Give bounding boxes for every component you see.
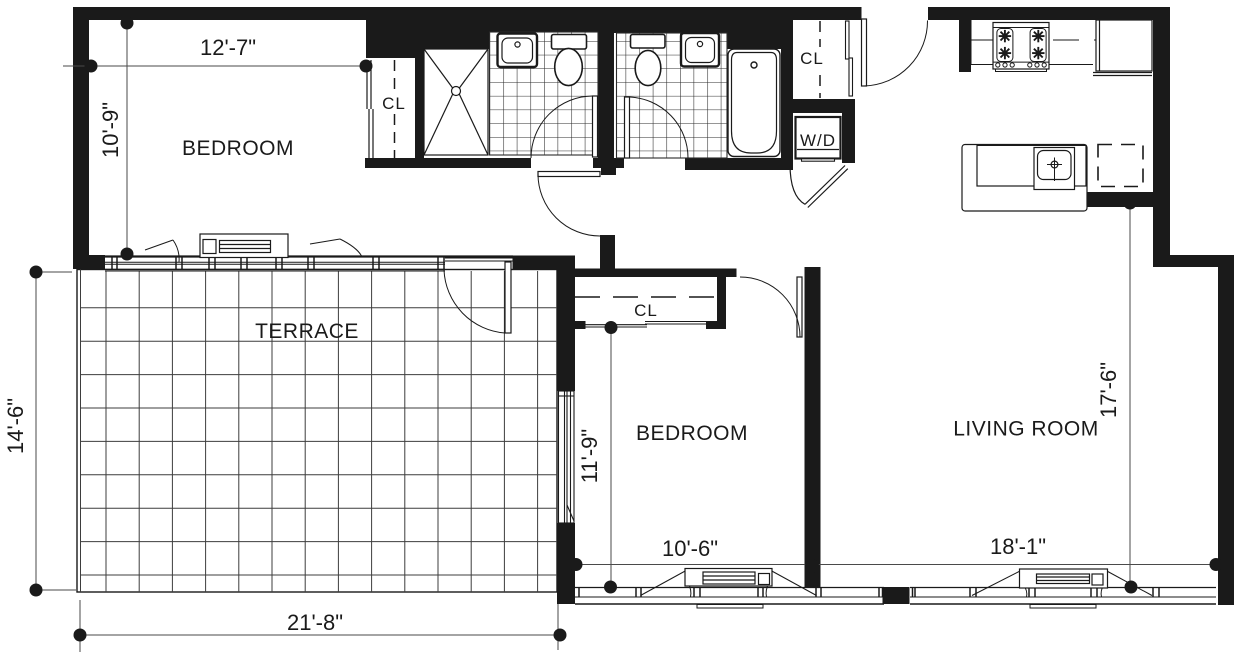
svg-text:18'-1": 18'-1" <box>990 534 1046 559</box>
svg-text:CL: CL <box>800 49 824 68</box>
svg-text:14'-6": 14'-6" <box>3 398 28 454</box>
svg-text:10'-9": 10'-9" <box>98 102 123 158</box>
svg-text:21'-8": 21'-8" <box>287 610 343 635</box>
svg-text:TERRACE: TERRACE <box>255 320 359 343</box>
svg-text:17'-6": 17'-6" <box>1096 362 1121 418</box>
svg-text:BEDROOM: BEDROOM <box>636 422 748 445</box>
svg-text:CL: CL <box>634 301 658 320</box>
svg-text:12'-7": 12'-7" <box>200 35 256 60</box>
svg-text:W/D: W/D <box>800 131 836 150</box>
svg-text:BEDROOM: BEDROOM <box>182 137 294 160</box>
svg-text:LIVING ROOM: LIVING ROOM <box>953 418 1099 441</box>
svg-text:11'-9": 11'-9" <box>577 429 602 483</box>
svg-text:CL: CL <box>382 94 406 113</box>
svg-text:10'-6": 10'-6" <box>662 536 718 561</box>
